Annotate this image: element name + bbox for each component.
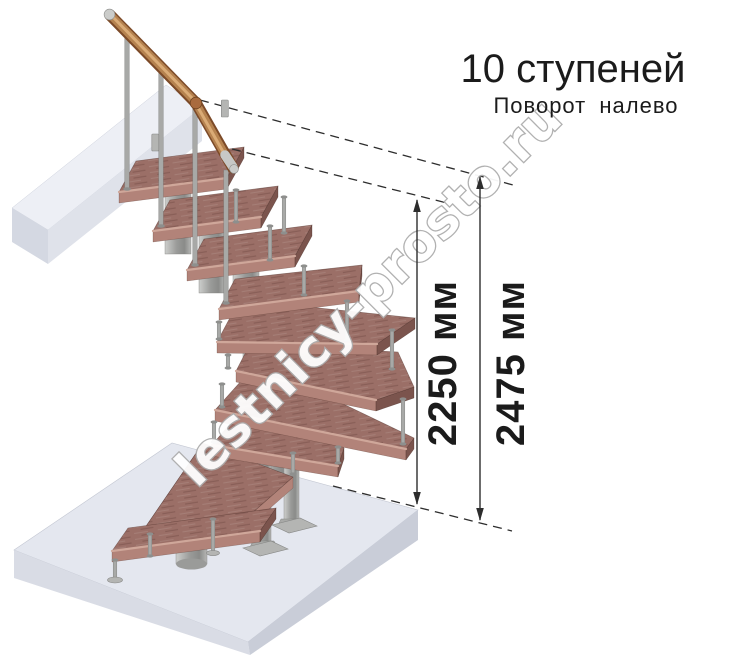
- baluster-bracket: [152, 134, 159, 151]
- support-rod: [225, 353, 232, 369]
- dimension-outer: 2475 мм: [476, 176, 533, 521]
- header: 10 ступеней Поворот налево: [461, 47, 686, 118]
- staircase-diagram-page: lestnicy-prosto.ru 2250 мм 2475 мм 10 ст…: [0, 0, 744, 655]
- dimension-label-inner: 2250 мм: [421, 280, 465, 446]
- handrail-end-cap: [230, 165, 239, 174]
- page-title: 10 ступеней: [461, 47, 686, 91]
- handrail-end-cap: [104, 9, 115, 20]
- staircase-illustration: lestnicy-prosto.ru 2250 мм 2475 мм 10 ст…: [0, 0, 744, 655]
- baluster-bracket: [221, 100, 228, 117]
- dimension-label-outer: 2475 мм: [489, 280, 533, 446]
- handrail-joint: [190, 97, 202, 109]
- page-subtitle: Поворот налево: [493, 93, 678, 118]
